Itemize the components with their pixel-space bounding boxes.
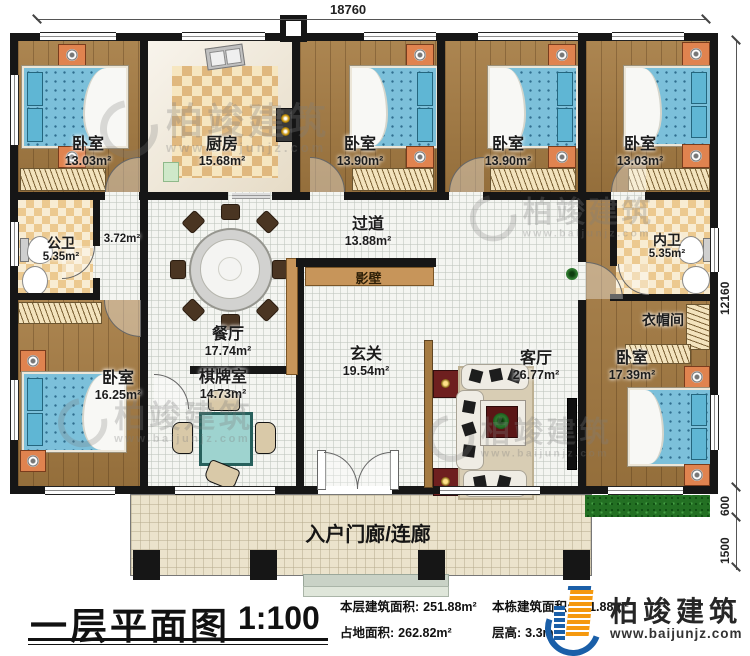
- nightstand: [406, 44, 434, 66]
- logo-roof: [568, 586, 591, 590]
- dim-right-porch: 1500: [718, 522, 732, 564]
- dining-table: [189, 228, 273, 312]
- pillow: [417, 72, 433, 106]
- bed: [624, 66, 712, 146]
- washbasin: [22, 266, 48, 296]
- nightstand: [58, 44, 86, 66]
- plant: [493, 413, 509, 429]
- dim-line-top: [36, 19, 706, 20]
- window: [10, 380, 19, 440]
- room-label-bedroom-top-right: 卧室13.03m²: [595, 136, 685, 169]
- room-label-living: 客厅26.77m²: [491, 350, 581, 383]
- burner: [281, 114, 290, 123]
- room-label-porch: 入户门廊/连廊: [268, 518, 468, 547]
- room-label-corridor: 过道13.88m²: [323, 216, 413, 249]
- sofa-cushion: [461, 421, 476, 436]
- wall-bed3-bed4: [578, 41, 586, 200]
- wall-mid-f: [645, 192, 718, 200]
- stat-floor-area: 本层建筑面积:251.88m²: [340, 596, 477, 615]
- pillow: [27, 378, 43, 411]
- screen-wall-base: [296, 258, 436, 267]
- dim-right-total: 12160: [718, 215, 732, 315]
- dim-line-right: [736, 40, 737, 570]
- sink-basin: [225, 48, 242, 65]
- nightstand: [684, 464, 710, 486]
- nightstand: [682, 144, 710, 168]
- suite-wall-left-lower: [578, 300, 586, 486]
- tv: [567, 398, 577, 470]
- dining-table-center: [218, 257, 242, 281]
- cabinet-knob: [441, 379, 450, 388]
- window: [10, 75, 19, 145]
- nightstand: [20, 450, 46, 472]
- nightstand: [20, 350, 46, 372]
- wall-bed1-kitchen: [140, 41, 148, 200]
- pillow: [557, 108, 573, 142]
- sofa-cushion: [462, 400, 476, 414]
- public-bath-wall-bottom: [10, 293, 100, 300]
- chimney-flue: [286, 21, 301, 36]
- plan-scale: 1:100: [238, 600, 320, 637]
- wall-mid-c: [272, 192, 310, 200]
- window: [478, 32, 578, 41]
- window: [364, 32, 436, 41]
- dining-pilaster: [286, 258, 298, 375]
- pillow: [27, 108, 43, 142]
- wall-mid-a: [10, 192, 105, 200]
- plan-title: 一层平面图: [30, 596, 230, 650]
- porch-column: [418, 550, 445, 580]
- grass-strip: [585, 495, 710, 517]
- wall-mid-d: [344, 192, 449, 200]
- bed: [628, 388, 712, 466]
- pillow: [27, 72, 43, 106]
- nightstand: [684, 366, 710, 388]
- room-label-bedroom-top-2: 卧室13.90m²: [315, 136, 405, 169]
- brand-url: www.baijunjz.com: [610, 626, 743, 641]
- inner-bath-wall-bottom: [610, 294, 718, 301]
- pillow: [557, 72, 573, 106]
- wall-mid-b: [139, 192, 228, 200]
- room-label-screen-wall: 影壁: [305, 268, 432, 287]
- room-label-inner-bath: 内卫5.35m²: [622, 232, 712, 261]
- cabinet-knob: [441, 477, 450, 486]
- foyer-half-wall: [424, 340, 433, 488]
- burner: [281, 127, 290, 136]
- nightstand: [406, 146, 434, 168]
- room-label-foyer: 玄关19.54m²: [321, 346, 411, 379]
- entry-door-leaf-right: [390, 450, 399, 490]
- wall-kitchen-bed2: [292, 41, 300, 200]
- pillow: [417, 108, 433, 142]
- wall-bed2-bed3: [437, 41, 445, 200]
- room-label-kitchen: 厨房15.68m²: [177, 136, 267, 169]
- wardrobe-bedroom-top-left: [20, 168, 106, 191]
- wardrobe-bedroom-top-3: [490, 168, 576, 191]
- dining-chair: [170, 260, 186, 279]
- window: [175, 486, 275, 495]
- room-label-hall: 3.72m²: [92, 233, 152, 246]
- room-label-dining: 餐厅17.74m²: [183, 326, 273, 359]
- bed-sheet: [626, 68, 662, 144]
- window: [182, 32, 265, 41]
- pillow: [691, 394, 707, 426]
- logo-tower-left: [554, 606, 565, 640]
- sofa-cushion: [469, 369, 484, 384]
- wardrobe-bedroom-top-2: [352, 168, 434, 191]
- window: [612, 32, 684, 41]
- window: [40, 32, 116, 41]
- room-label-bedroom-top-left: 卧室13.03m²: [43, 136, 133, 169]
- logo-tower-main: [566, 590, 594, 636]
- coffee-table: [480, 400, 526, 446]
- entry-steps-lower: [303, 586, 449, 597]
- bed-sheet: [490, 68, 526, 146]
- sink-basin: [209, 50, 226, 67]
- bed-sheet: [352, 68, 388, 146]
- game-table: [199, 412, 253, 466]
- bed-sheet: [83, 68, 126, 146]
- dim-top-value: 18760: [330, 2, 366, 17]
- tv-cabinet: [433, 370, 459, 398]
- room-label-cloakroom: 衣帽间: [618, 312, 708, 328]
- bed-sheet: [630, 390, 664, 464]
- pillow: [691, 428, 707, 460]
- pillow: [691, 106, 707, 138]
- stat-footprint-area: 占地面积:262.82m²: [340, 622, 452, 641]
- nightstand: [548, 44, 576, 66]
- window: [710, 395, 719, 450]
- title-underline: [28, 638, 328, 641]
- dining-chair: [221, 204, 240, 220]
- wall-mid-e: [483, 192, 611, 200]
- brand-logo-icon: [545, 584, 603, 648]
- game-chair: [255, 422, 276, 454]
- dim-right-grass: 600: [718, 488, 732, 516]
- room-label-bedroom-bottom-right: 卧室17.39m²: [587, 350, 677, 383]
- wardrobe-bedroom-bottom-left: [18, 302, 102, 324]
- room-label-bedroom-bottom-left: 卧室16.25m²: [73, 370, 163, 403]
- sofa-cushion: [462, 444, 476, 458]
- brand-name: 柏竣建筑: [610, 590, 742, 630]
- kitchen-threshold: [232, 193, 270, 199]
- window: [45, 486, 115, 495]
- porch-column: [133, 550, 160, 580]
- pillow: [27, 413, 43, 446]
- washbasin: [682, 266, 710, 294]
- room-label-game-room: 棋牌室14.73m²: [178, 369, 268, 402]
- plant-small: [566, 268, 578, 280]
- nightstand: [682, 42, 710, 66]
- suite-wall-left-upper: [578, 200, 586, 262]
- room-label-bedroom-top-3: 卧室13.90m²: [463, 136, 553, 169]
- game-chair: [172, 422, 193, 454]
- floor-plan-page: 柏竣建筑 www.baijunjz.com 柏竣建筑 www.baijunjz.…: [0, 0, 750, 656]
- pillow: [691, 72, 707, 104]
- window: [608, 486, 683, 495]
- porch-column: [250, 550, 277, 580]
- window: [440, 486, 540, 495]
- porch-column: [563, 550, 590, 580]
- title-underline-thin: [28, 644, 328, 645]
- inner-bath-wall-left: [610, 200, 617, 266]
